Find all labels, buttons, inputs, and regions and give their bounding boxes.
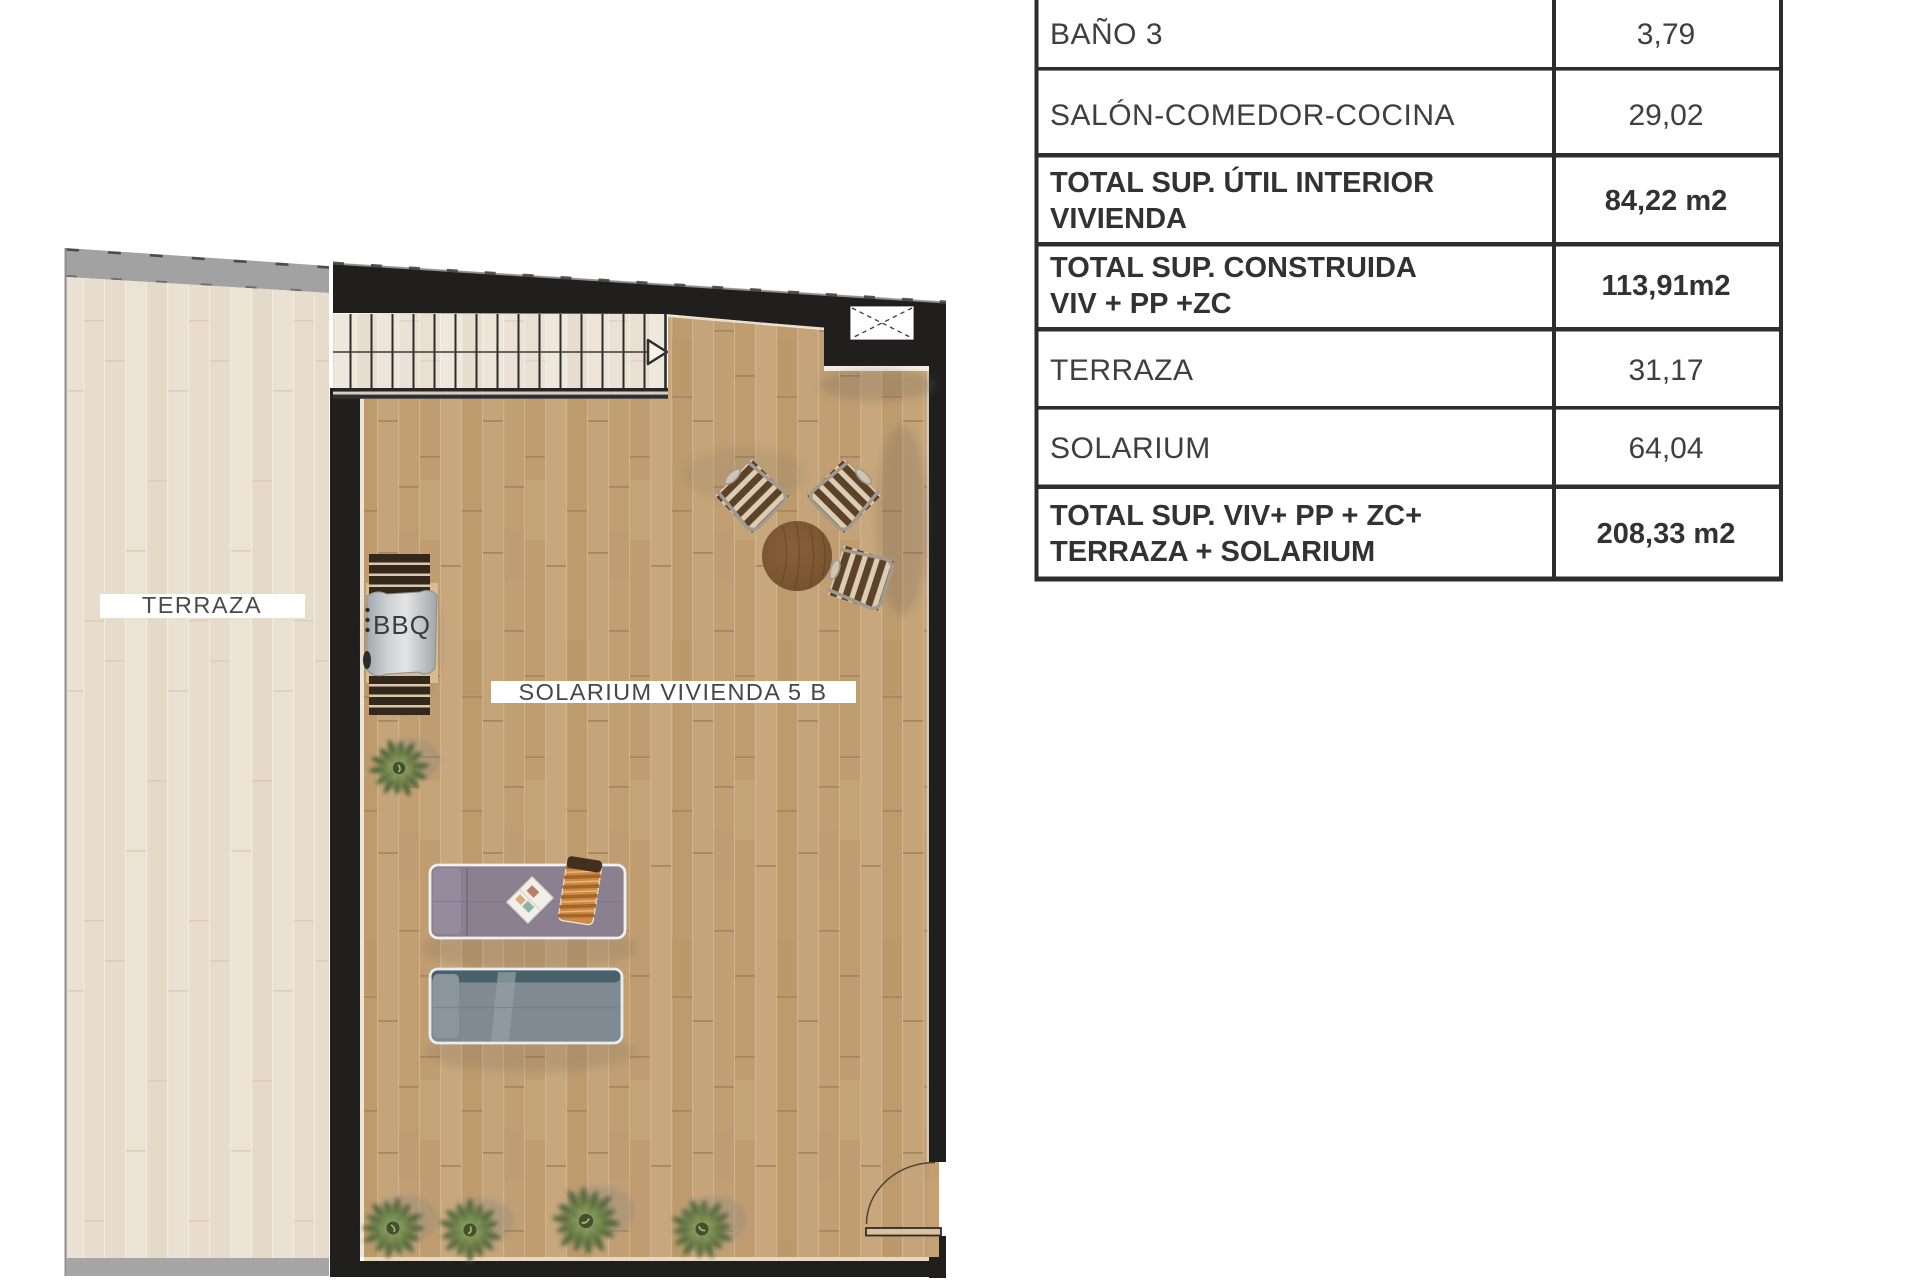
svg-text:31,17: 31,17 [1628, 354, 1703, 387]
svg-text:3,79: 3,79 [1637, 18, 1695, 51]
svg-text:TOTAL SUP. ÚTIL INTERIOR: TOTAL SUP. ÚTIL INTERIOR [1050, 165, 1434, 199]
svg-text:TERRAZA + SOLARIUM: TERRAZA + SOLARIUM [1050, 536, 1375, 568]
svg-text:29,02: 29,02 [1628, 99, 1703, 132]
svg-text:TOTAL SUP. VIV+ PP + ZC+: TOTAL SUP. VIV+ PP + ZC+ [1050, 500, 1422, 532]
svg-text:TERRAZA: TERRAZA [1050, 354, 1194, 387]
svg-text:SOLARIUM VIVIENDA 5 B: SOLARIUM VIVIENDA 5 B [519, 679, 828, 705]
svg-text:TOTAL SUP. CONSTRUIDA: TOTAL SUP. CONSTRUIDA [1050, 252, 1417, 284]
svg-text:113,91m2: 113,91m2 [1601, 270, 1730, 302]
svg-text:VIV + PP +ZC: VIV + PP +ZC [1050, 288, 1232, 320]
svg-text:208,33 m2: 208,33 m2 [1597, 518, 1736, 550]
svg-text:VIVIENDA: VIVIENDA [1050, 203, 1187, 235]
svg-text:SALÓN-COMEDOR-COCINA: SALÓN-COMEDOR-COCINA [1050, 99, 1455, 132]
svg-text:BBQ: BBQ [373, 610, 431, 640]
svg-text:64,04: 64,04 [1628, 432, 1703, 465]
svg-text:TERRAZA: TERRAZA [142, 592, 262, 618]
svg-text:SOLARIUM: SOLARIUM [1050, 432, 1211, 465]
svg-text:BAÑO 3: BAÑO 3 [1050, 17, 1163, 51]
svg-text:84,22 m2: 84,22 m2 [1605, 185, 1728, 217]
